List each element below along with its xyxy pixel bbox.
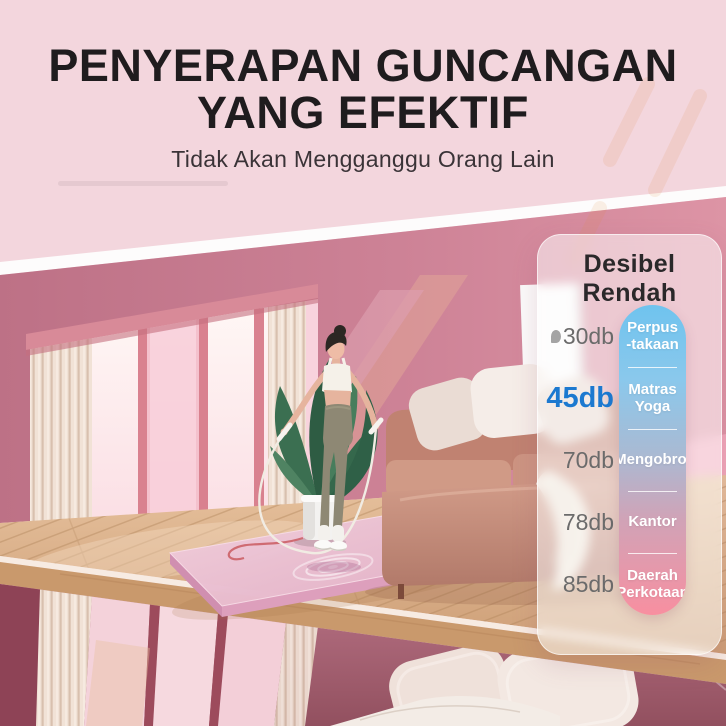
decibel-panel-title: Desibel Rendah <box>538 250 721 308</box>
db-row-library: 30db <box>538 305 616 367</box>
db-row-urban: 85db <box>538 553 616 615</box>
pill-label-yoga-mat: Matras Yoga <box>619 367 686 429</box>
headline-line2: YANG EFEKTIF <box>0 89 726 136</box>
db-row-chatting: 70db <box>538 429 616 491</box>
decibel-gradient-pill: Perpus -takaan Matras Yoga Mengobrol Kan… <box>619 305 686 615</box>
headline-line1: PENYERAPAN GUNCANGAN <box>0 42 726 89</box>
db-value: 70db <box>563 447 614 474</box>
pill-label-chatting: Mengobrol <box>619 429 686 491</box>
pill-label-line: Yoga <box>635 398 671 415</box>
db-value-highlight: 45db <box>546 382 614 415</box>
db-row-yoga-mat: 45db <box>538 367 616 429</box>
pill-label-line: Kantor <box>628 513 676 530</box>
sock-right <box>332 525 344 542</box>
db-value: 78db <box>563 509 614 536</box>
pill-label-library: Perpus -takaan <box>619 305 686 367</box>
pill-label-line: Perkotaan <box>619 584 686 601</box>
sock-left <box>318 525 330 542</box>
decibel-panel: Desibel Rendah 30db 45db 70db 78db 85db … <box>537 234 722 655</box>
pill-label-line: -takaan <box>626 336 679 353</box>
pill-label-office: Kantor <box>619 491 686 553</box>
decibel-values-column: 30db 45db 70db 78db 85db <box>538 305 616 615</box>
promo-image: PENYERAPAN GUNCANGAN YANG EFEKTIF Tidak … <box>0 0 726 726</box>
library-icon <box>551 330 561 343</box>
figure-shadow <box>307 562 361 573</box>
db-value: 30db <box>563 323 614 350</box>
mirrored-curtain-left <box>36 589 92 726</box>
pill-label-line: Mengobrol <box>619 451 686 468</box>
pill-label-urban: Daerah Perkotaan <box>619 553 686 615</box>
fine-print-smudge <box>58 181 228 186</box>
db-row-office: 78db <box>538 491 616 553</box>
pill-label-line: Matras <box>628 381 676 398</box>
hair-bun <box>334 325 346 337</box>
db-value: 85db <box>563 571 614 598</box>
header: PENYERAPAN GUNCANGAN YANG EFEKTIF Tidak … <box>0 42 726 173</box>
pill-label-line: Daerah <box>627 567 678 584</box>
subtitle: Tidak Akan Mengganggu Orang Lain <box>0 146 726 173</box>
pill-label-line: Perpus <box>627 319 678 336</box>
